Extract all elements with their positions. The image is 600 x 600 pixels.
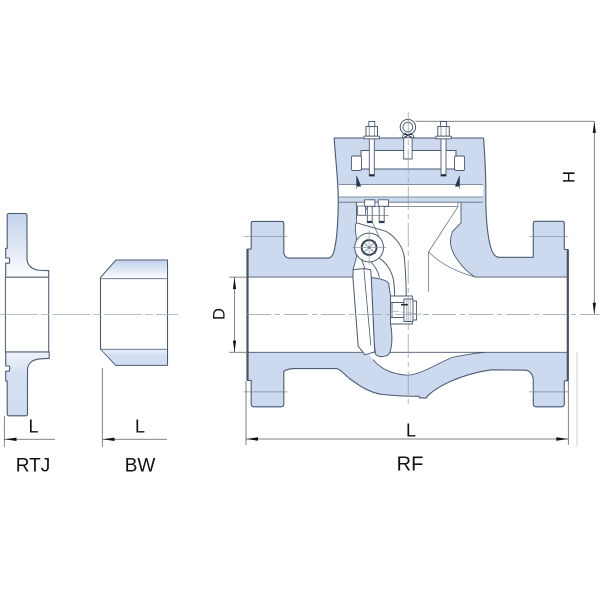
svg-text:D: D [210,308,228,320]
svg-text:BW: BW [125,456,156,477]
svg-text:RF: RF [397,454,424,476]
svg-text:H: H [561,171,579,183]
svg-text:L: L [28,417,38,437]
svg-text:L: L [135,417,145,437]
svg-text:RTJ: RTJ [16,456,50,477]
svg-text:L: L [406,421,416,441]
